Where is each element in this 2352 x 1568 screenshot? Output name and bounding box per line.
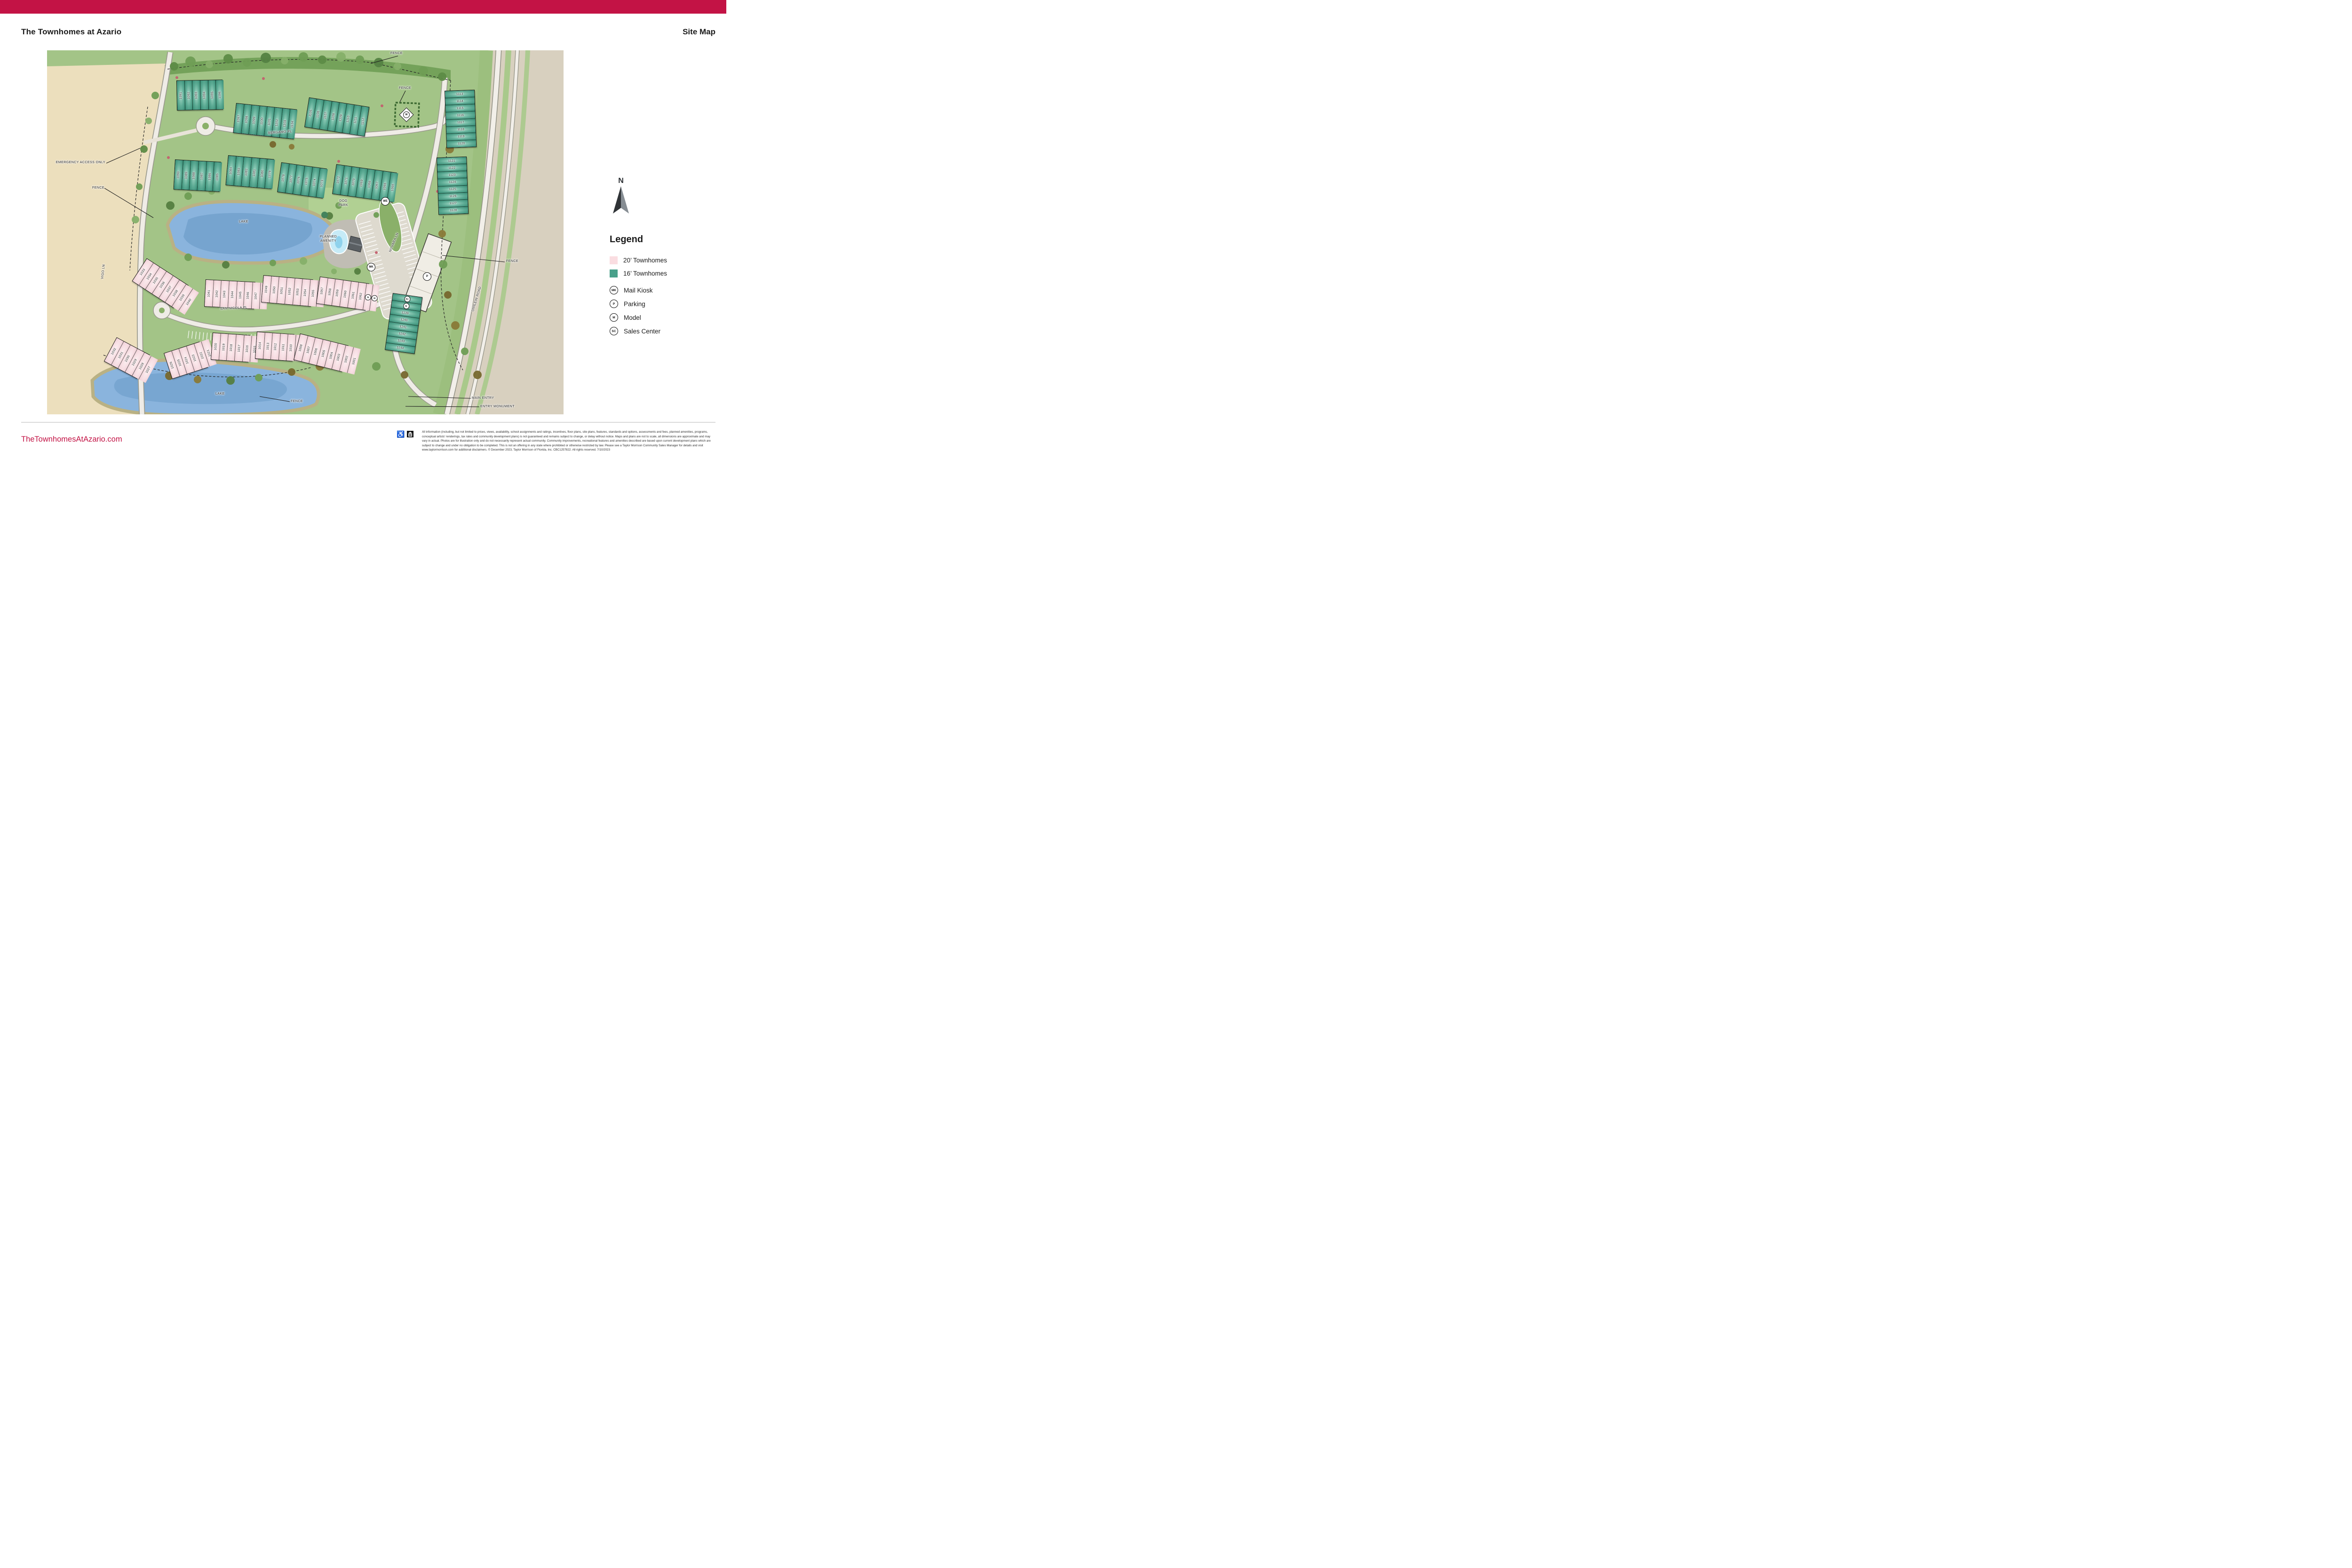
legend-title: Legend — [610, 234, 713, 245]
legend-label: Sales Center — [624, 328, 660, 335]
legend-item-mail-kiosk: MKMail Kiosk — [610, 286, 713, 294]
legend-label: 16’ Townhomes — [623, 270, 667, 277]
legend-symbol-mk: MK — [610, 286, 618, 294]
p-marker-icon: P — [423, 272, 431, 281]
accessibility-icon: ♿ — [397, 431, 405, 437]
north-compass: N — [610, 177, 632, 218]
lot-1085: 1085 — [213, 162, 222, 191]
legend-item-sales-center: SCSales Center — [610, 327, 713, 335]
north-arrow-icon — [611, 186, 631, 215]
lot-1093: 1093 — [192, 80, 201, 110]
building-1041-1048: 10411042104310441045104610471048 — [204, 279, 255, 309]
map-label-planned-amenity: PLANNED AMENITY — [310, 235, 346, 244]
map-label-fence-south: FENCE — [291, 399, 303, 404]
legend-label: 20’ Townhomes — [623, 257, 667, 264]
page-label-site-map: Site Map — [683, 27, 715, 37]
legend-item-parking: PParking — [610, 300, 713, 308]
legend-label: Model — [624, 314, 641, 321]
m-marker-icon: M — [365, 293, 372, 301]
lot-1096: 1096 — [216, 80, 224, 109]
building-1020-1015: 102010191018101710161015 — [211, 333, 250, 362]
page-title: The Townhomes at Azario — [21, 27, 121, 37]
page: The Townhomes at Azario Site Map — [0, 0, 726, 473]
building-1113-1120: 11131114111511161117111811191120 — [445, 90, 477, 148]
legend-item-20-townhomes: 20’ Townhomes — [610, 256, 713, 264]
m-marker-icon: M — [371, 294, 378, 301]
lot-1091: 1091 — [177, 81, 185, 110]
legend: Legend 20’ Townhomes16’ TownhomesMKMail … — [610, 234, 713, 341]
building-1091-1096: 109110921093109410951096 — [176, 79, 223, 111]
legend-symbol-m: M — [610, 313, 618, 322]
website-link[interactable]: TheTownhomesAtAzario.com — [21, 435, 122, 444]
legend-label: Mail Kiosk — [624, 287, 653, 294]
sc-marker-icon: SC — [404, 295, 411, 302]
legend-item-16-townhomes: 16’ Townhomes — [610, 269, 713, 277]
legend-symbol-p: P — [610, 300, 618, 308]
map-label-main-entry: MAIN ENTRY — [472, 396, 494, 400]
disclaimer-text: All information (including, but not limi… — [422, 430, 715, 452]
map-label-fence-top: FENCE — [390, 51, 403, 55]
top-brand-bar — [0, 0, 726, 14]
m-marker-icon: M — [403, 302, 410, 309]
building-1090-1085: 109010891088108710861085 — [174, 159, 221, 192]
compass-n-label: N — [610, 177, 632, 185]
map-label-fence-west: FENCE — [92, 186, 104, 190]
building-1014-1009: 101410131012101110101009 — [255, 332, 294, 361]
building-1084-1079: 108410831082108110801079 — [225, 155, 274, 189]
mk-marker-icon: MK — [367, 263, 375, 271]
map-label-fence-east: FENCE — [506, 259, 518, 263]
map-label-lake-upper: LAKE — [239, 220, 248, 224]
lot-1120: 1120 — [447, 140, 476, 148]
legend-label: Parking — [624, 301, 645, 308]
we-marker-icon: WE — [381, 197, 389, 206]
map-label-emergency-access: EMERGENCY ACCESS ONLY — [51, 160, 105, 165]
map-label-dog-park: DOG PARK — [328, 199, 358, 208]
legend-swatch — [610, 269, 618, 277]
legend-item-model: MModel — [610, 313, 713, 322]
site-map: 1091109210931094109510961097109810991100… — [47, 50, 564, 414]
lot-1095: 1095 — [208, 80, 217, 110]
legend-swatch — [610, 256, 618, 264]
map-label-lake-lower: LAKE — [215, 392, 225, 396]
lot-1128: 1128 — [439, 207, 468, 214]
legend-symbol-sc: SC — [610, 327, 618, 335]
lot-1092: 1092 — [185, 80, 193, 110]
footer-divider — [21, 422, 715, 423]
lot-1094: 1094 — [200, 80, 209, 110]
map-label-fence-well: FENCE — [399, 86, 411, 90]
building-1078-1073: 107810771076107510741073 — [277, 162, 327, 198]
equal-housing-icon — [407, 431, 413, 437]
building-1049-1056: 10491050105110521053105410551056 — [261, 275, 313, 307]
building-1121-1128: 11211122112311241125112611271128 — [437, 157, 469, 215]
map-label-entry-monument: ENTRY MONUMENT — [480, 404, 515, 409]
